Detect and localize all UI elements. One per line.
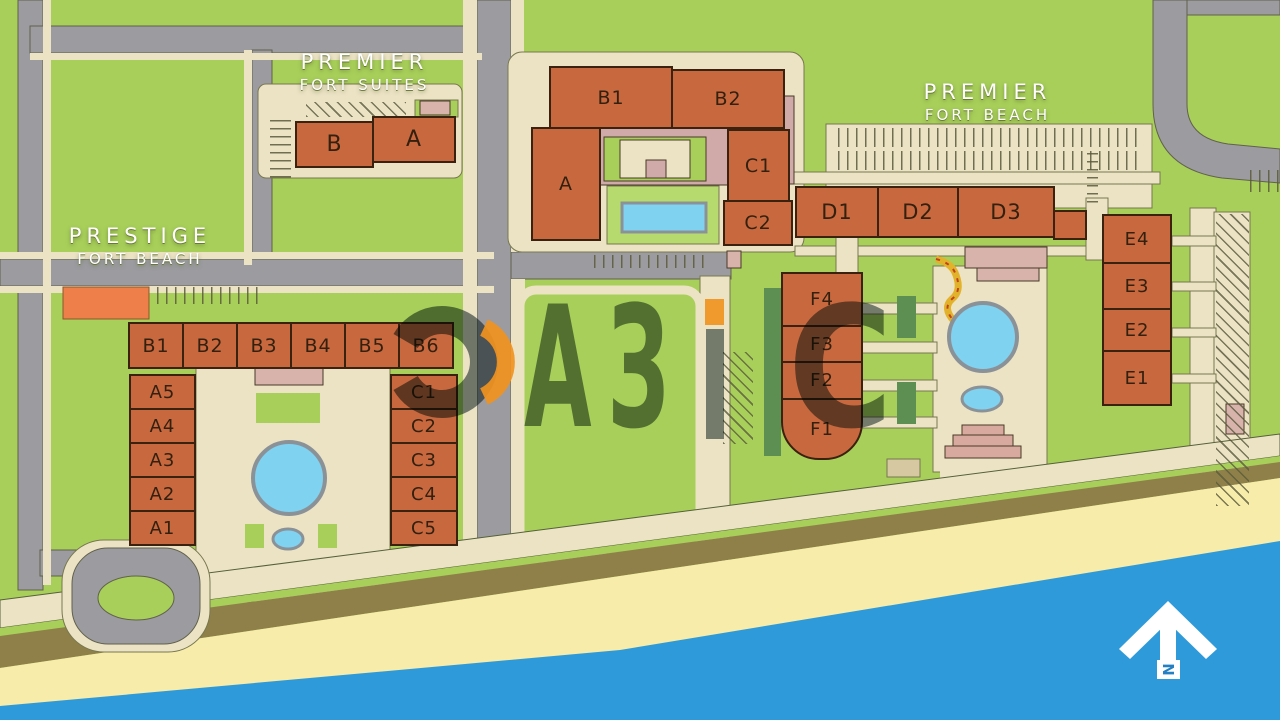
label-line2: FORT BEACH (60, 250, 220, 268)
road-left (18, 0, 43, 590)
building-prestige-a3: A3 (129, 442, 196, 478)
building-prestige-a1: A1 (129, 510, 196, 546)
label-line1: PREMIER (900, 80, 1075, 104)
premier-lap-pool (622, 203, 706, 232)
resort-site-map: B A B1 B2 A C1 C2 D1 D2 D3 E4 E3 E2 E1 F… (0, 0, 1280, 720)
beach-kids-pool (962, 387, 1002, 411)
watermark-letters-az: АЗ (524, 284, 685, 452)
road-central (477, 0, 511, 545)
parking-northeast-row1 (838, 128, 1138, 147)
amphitheater (945, 446, 1021, 458)
building-prestige-b3: B3 (236, 322, 292, 369)
hedge-f-west (764, 288, 781, 456)
building-e3: E3 (1102, 262, 1172, 310)
watermark-i-dot (705, 299, 724, 325)
north-label: N (1159, 658, 1178, 681)
label-premier-fort-suites: PREMIER FORT SUITES (272, 50, 457, 94)
label-prestige-fort-beach: PRESTIGE FORT BEACH (60, 224, 220, 268)
building-central-a: A (531, 127, 601, 241)
building-prestige-a5: A5 (129, 374, 196, 410)
building-prestige-a4: A4 (129, 408, 196, 444)
beach-walkway-steps (723, 352, 753, 444)
building-prestige-a2: A2 (129, 476, 196, 512)
building-prestige-c4: C4 (390, 476, 458, 512)
building-prestige-c3: C3 (390, 442, 458, 478)
parking-e-diagonal (1216, 214, 1249, 506)
building-central-b2: B2 (671, 69, 785, 129)
kiosk (727, 251, 741, 268)
building-d2: D2 (877, 186, 959, 238)
building-e2: E2 (1102, 308, 1172, 352)
building-central-b1: B1 (549, 66, 673, 129)
label-line1: PREMIER (272, 50, 457, 74)
roundabout (62, 540, 210, 652)
label-line1: PRESTIGE (60, 224, 220, 248)
beach-main-pool (949, 303, 1017, 371)
parking-prestige (157, 287, 264, 304)
building-prestige-c5: C5 (390, 510, 458, 546)
building-suites-b: B (295, 121, 374, 168)
watermark-i-stem (706, 329, 724, 439)
road-top-right (1187, 0, 1280, 15)
parking-central (594, 255, 710, 268)
building-prestige-b4: B4 (290, 322, 346, 369)
building-central-c1: C1 (727, 129, 790, 202)
label-line2: FORT BEACH (900, 106, 1075, 124)
building-d1: D1 (795, 186, 879, 238)
parking-suites-west (270, 120, 291, 178)
building-d3: D3 (957, 186, 1055, 238)
prestige-kids-pool (273, 529, 303, 549)
building-e1: E1 (1102, 350, 1172, 406)
road-top (30, 26, 482, 53)
building-prestige-b2: B2 (182, 322, 238, 369)
label-premier-fort-beach: PREMIER FORT BEACH (900, 80, 1075, 124)
parking-suites-north (306, 102, 406, 117)
orange-building (63, 287, 149, 319)
prestige-main-pool (253, 442, 325, 514)
label-line2: FORT SUITES (272, 76, 457, 94)
building-d3-annex (1053, 210, 1087, 240)
building-suites-a: A (372, 116, 456, 163)
building-e4: E4 (1102, 214, 1172, 264)
parking-east-edge (1250, 170, 1280, 192)
watermark-o-orange-arc (385, 285, 535, 445)
watermark-letter-s: С (788, 284, 919, 452)
road-northeast-curve (1153, 0, 1280, 183)
building-prestige-b1: B1 (128, 322, 184, 369)
parking-northeast-ladder (1087, 153, 1098, 203)
building-central-c2: C2 (723, 200, 793, 246)
